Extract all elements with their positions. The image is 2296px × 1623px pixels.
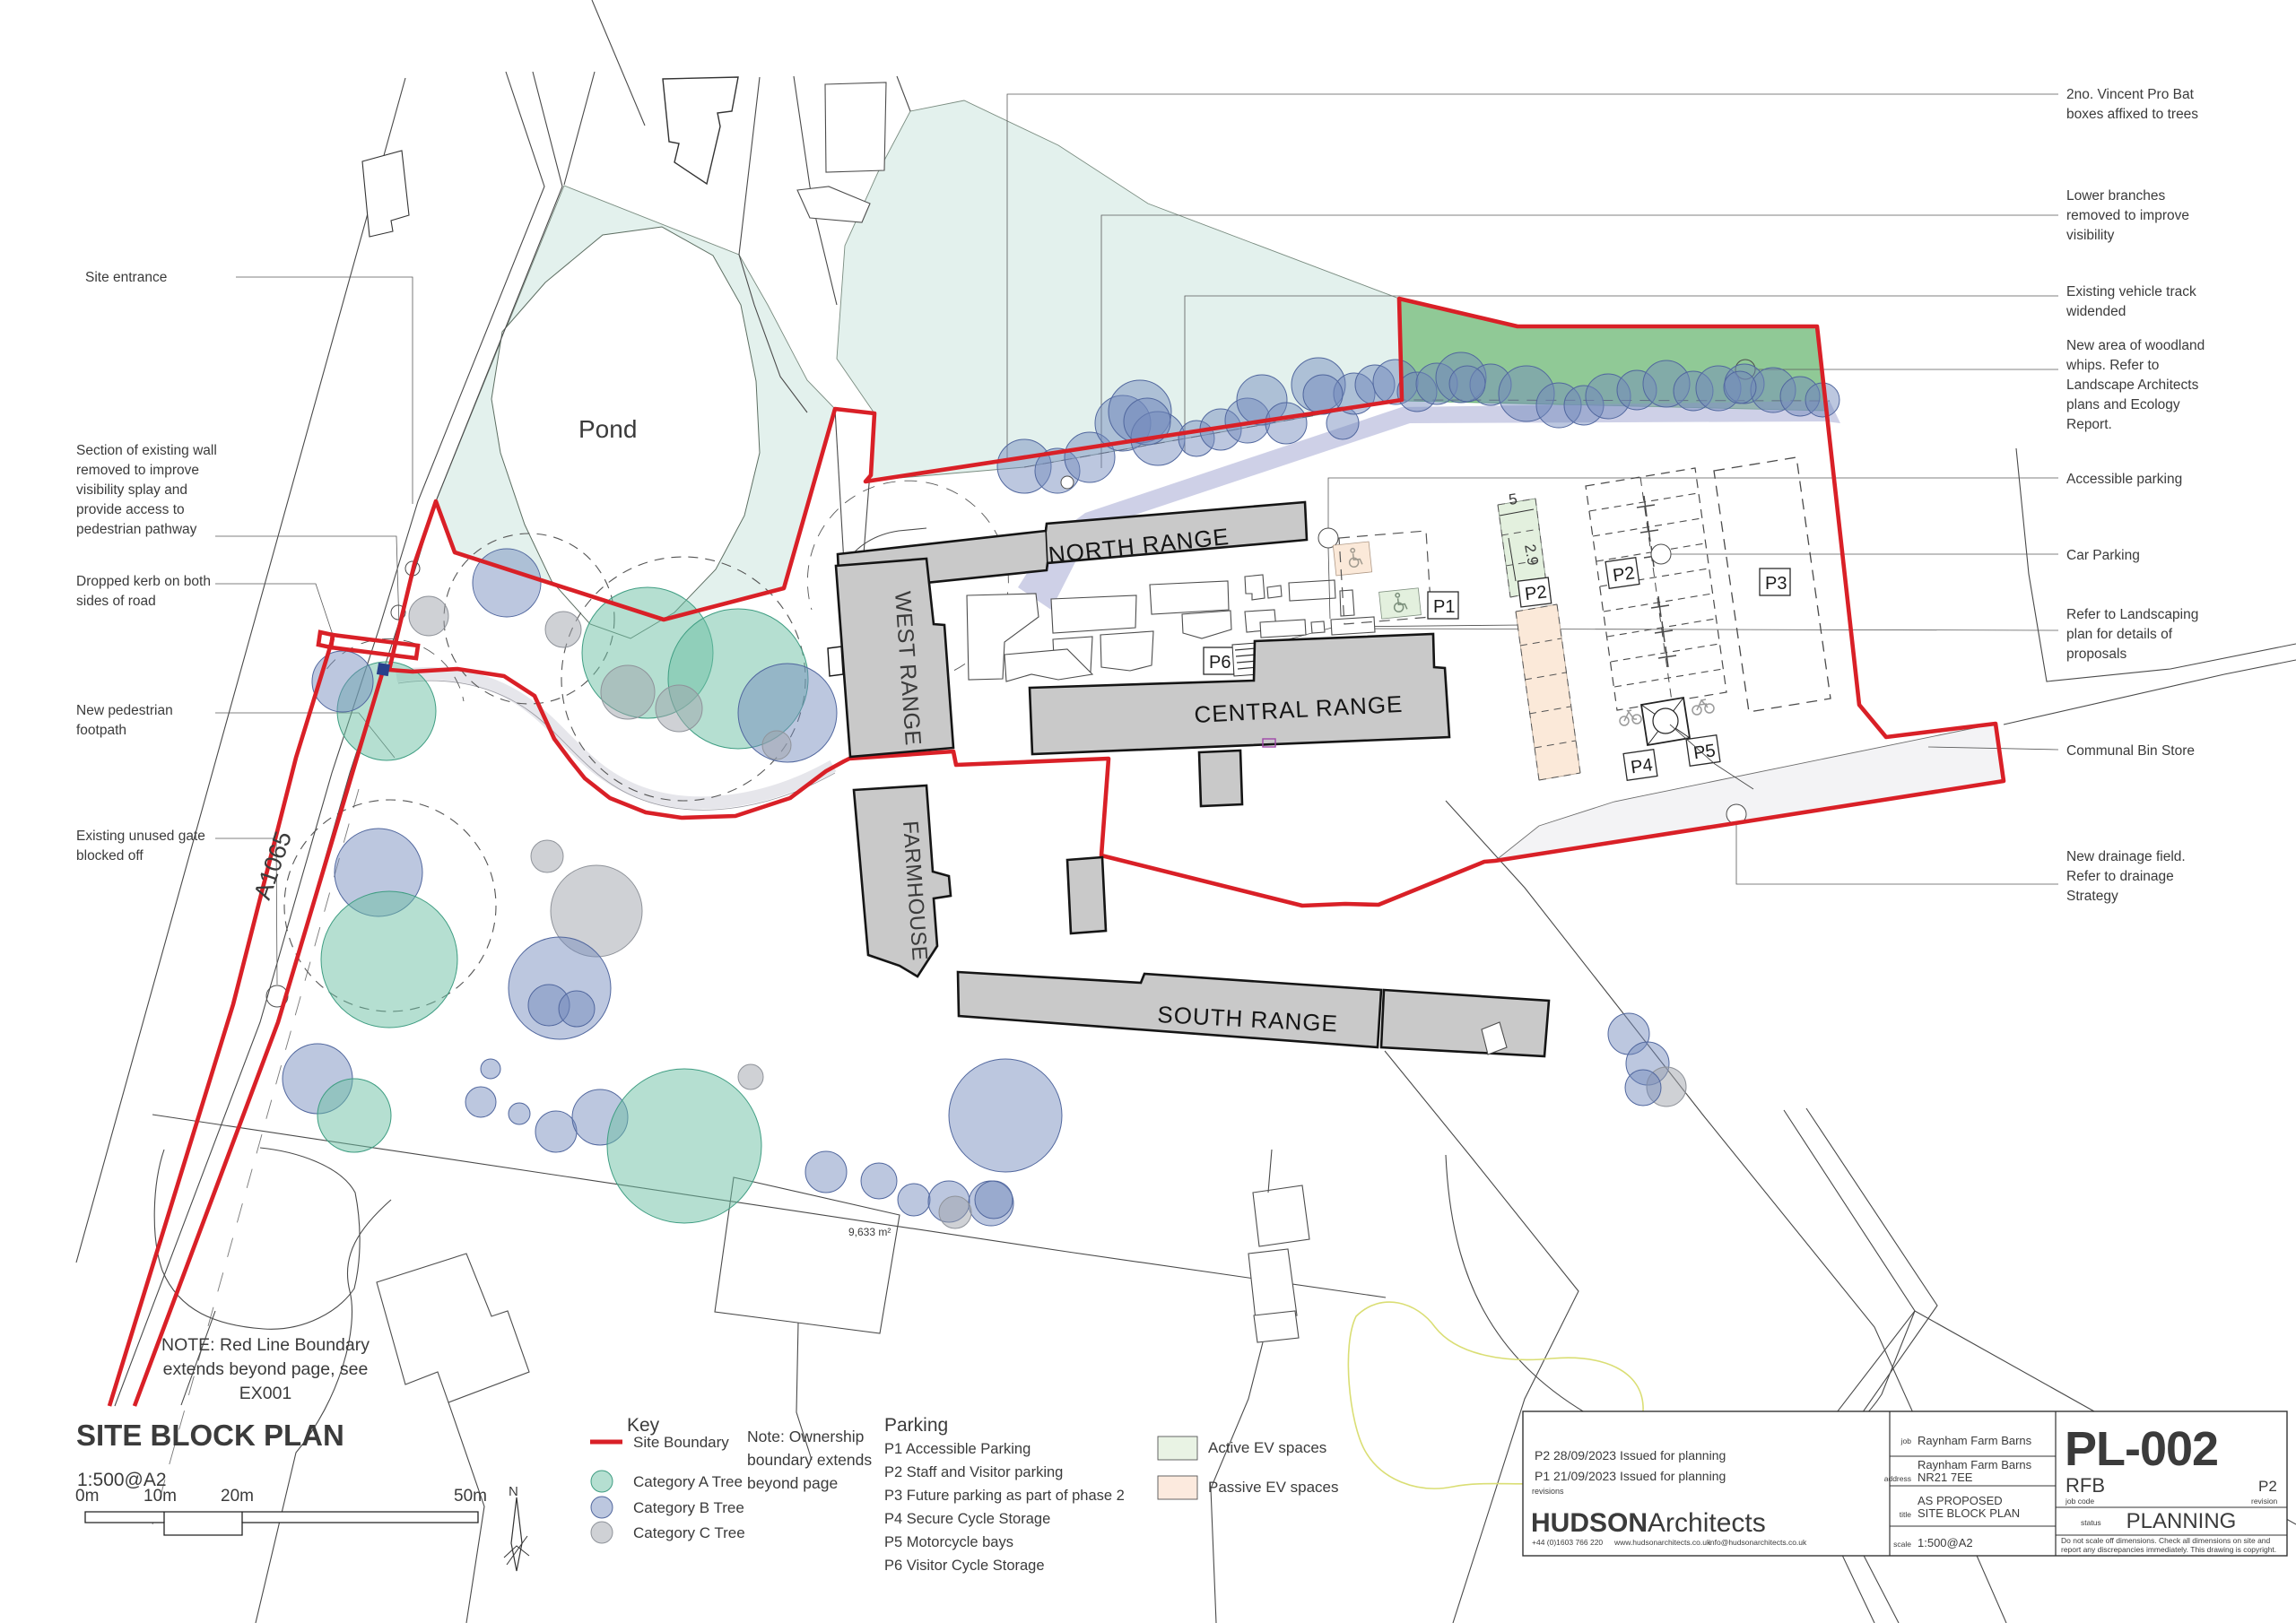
- svg-text:Key: Key: [627, 1415, 660, 1436]
- svg-text:Site entrance: Site entrance: [85, 270, 167, 285]
- svg-text:Passive EV spaces: Passive EV spaces: [1208, 1479, 1339, 1496]
- svg-text:P4: P4: [1630, 755, 1654, 777]
- svg-text:revision: revision: [2251, 1497, 2278, 1506]
- svg-text:0m: 0m: [75, 1487, 99, 1506]
- svg-text:AS PROPOSED: AS PROPOSED: [1918, 1494, 2003, 1507]
- svg-text:Accessible parking: Accessible parking: [2066, 472, 2182, 487]
- svg-text:Active EV spaces: Active EV spaces: [1208, 1439, 1326, 1456]
- svg-text:Site Boundary: Site Boundary: [633, 1434, 729, 1451]
- svg-text:P2 28/09/2023 Issued for pl: P2 28/09/2023 Issued for planning: [1535, 1448, 1726, 1462]
- svg-text:Raynham Farm Barns: Raynham Farm Barns: [1918, 1434, 2032, 1447]
- svg-text:scale: scale: [1893, 1540, 1911, 1549]
- svg-text:+44 (0)1603 766 220: +44 (0)1603 766 220: [1532, 1538, 1603, 1547]
- svg-text:status: status: [2081, 1518, 2101, 1527]
- svg-text:P1: P1: [1433, 597, 1455, 617]
- svg-text:P2: P2: [1612, 563, 1636, 586]
- svg-text:Do not scale off dimensions. C: Do not scale off dimensions. Check all d…: [2061, 1536, 2271, 1545]
- svg-text:Pond: Pond: [578, 415, 637, 443]
- svg-text:title: title: [1900, 1510, 1912, 1519]
- svg-text:SITE BLOCK PLAN: SITE BLOCK PLAN: [76, 1419, 344, 1452]
- svg-text:2.9: 2.9: [1521, 542, 1542, 567]
- svg-text:www.hudsonarchitects.co.uk: www.hudsonarchitects.co.uk: [1613, 1538, 1711, 1547]
- svg-text:Category C Tree: Category C Tree: [633, 1524, 745, 1541]
- svg-text:job code: job code: [2065, 1497, 2094, 1506]
- svg-text:Category A Tree: Category A Tree: [633, 1473, 743, 1490]
- svg-text:P3: P3: [1765, 574, 1787, 594]
- svg-text:Parking: Parking: [884, 1415, 948, 1436]
- svg-text:P2: P2: [1524, 582, 1548, 604]
- svg-text:10m: 10m: [143, 1487, 177, 1506]
- svg-text:Car Parking: Car Parking: [2066, 548, 2140, 563]
- svg-text:P2: P2: [2258, 1478, 2277, 1495]
- svg-text:SITE BLOCK PLAN: SITE BLOCK PLAN: [1918, 1506, 2020, 1520]
- svg-text:P5: P5: [1692, 741, 1717, 763]
- svg-text:20m: 20m: [221, 1487, 254, 1506]
- svg-text:job: job: [1900, 1436, 1912, 1445]
- svg-text:PL-002: PL-002: [2065, 1422, 2218, 1476]
- svg-text:N: N: [509, 1484, 518, 1499]
- svg-text:P1 21/09/2023 Issued for pl: P1 21/09/2023 Issued for planning: [1535, 1469, 1726, 1483]
- svg-text:Communal Bin Store: Communal Bin Store: [2066, 743, 2195, 759]
- svg-text:1:500@A2: 1:500@A2: [1918, 1536, 1973, 1549]
- svg-text:9,633 m²: 9,633 m²: [848, 1226, 891, 1238]
- svg-text:RFB: RFB: [2066, 1474, 2105, 1497]
- svg-text:report any discrepancies immed: report any discrepancies immediately. Th…: [2061, 1545, 2276, 1554]
- svg-text:P6: P6: [1209, 653, 1231, 673]
- svg-text:HUDSONArchitects: HUDSONArchitects: [1531, 1508, 1766, 1538]
- svg-text:address: address: [1884, 1474, 1911, 1483]
- svg-text:revisions: revisions: [1532, 1487, 1564, 1496]
- svg-text:NR21 7EE: NR21 7EE: [1918, 1471, 1973, 1484]
- svg-text:PLANNING: PLANNING: [2126, 1509, 2237, 1533]
- svg-text:50m: 50m: [454, 1487, 487, 1506]
- svg-text:info@hudsonarchitects.co.uk: info@hudsonarchitects.co.uk: [1709, 1538, 1807, 1547]
- svg-text:Category B Tree: Category B Tree: [633, 1499, 744, 1516]
- svg-text:Raynham Farm Barns: Raynham Farm Barns: [1918, 1458, 2032, 1471]
